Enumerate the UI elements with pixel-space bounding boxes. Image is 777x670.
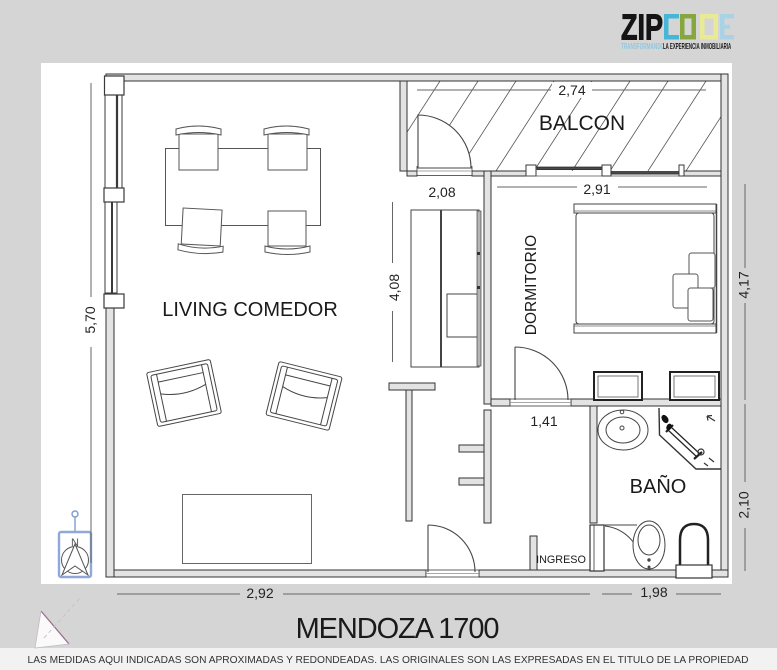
svg-text:2,91: 2,91 — [583, 181, 610, 197]
svg-text:ZIP: ZIP — [621, 7, 663, 48]
svg-text:2,10: 2,10 — [736, 491, 752, 518]
svg-text:INGRESO: INGRESO — [536, 554, 586, 566]
svg-text:4,08: 4,08 — [386, 274, 402, 301]
svg-text:LA EXPERIENCIA INMOBILIARIA: LA EXPERIENCIA INMOBILIARIA — [663, 43, 731, 52]
svg-text:1,98: 1,98 — [640, 584, 667, 600]
svg-text:BALCON: BALCON — [539, 112, 625, 135]
svg-text:LAS MEDIDAS AQUI INDICADAS SON: LAS MEDIDAS AQUI INDICADAS SON APROXIMAD… — [28, 655, 749, 666]
svg-text:2,92: 2,92 — [246, 585, 273, 601]
svg-text:2,74: 2,74 — [558, 82, 585, 98]
svg-text:TRANSFORMANDO: TRANSFORMANDO — [621, 43, 664, 52]
svg-text:MENDOZA 1700: MENDOZA 1700 — [296, 613, 499, 645]
svg-text:1,41: 1,41 — [530, 413, 557, 429]
svg-text:DORMITORIO: DORMITORIO — [523, 235, 540, 335]
svg-text:5,70: 5,70 — [82, 306, 98, 333]
svg-text:4,17: 4,17 — [736, 271, 752, 298]
svg-text:LIVING COMEDOR: LIVING COMEDOR — [162, 299, 338, 321]
svg-text:BAÑO: BAÑO — [630, 474, 687, 498]
svg-text:2,08: 2,08 — [428, 184, 455, 200]
